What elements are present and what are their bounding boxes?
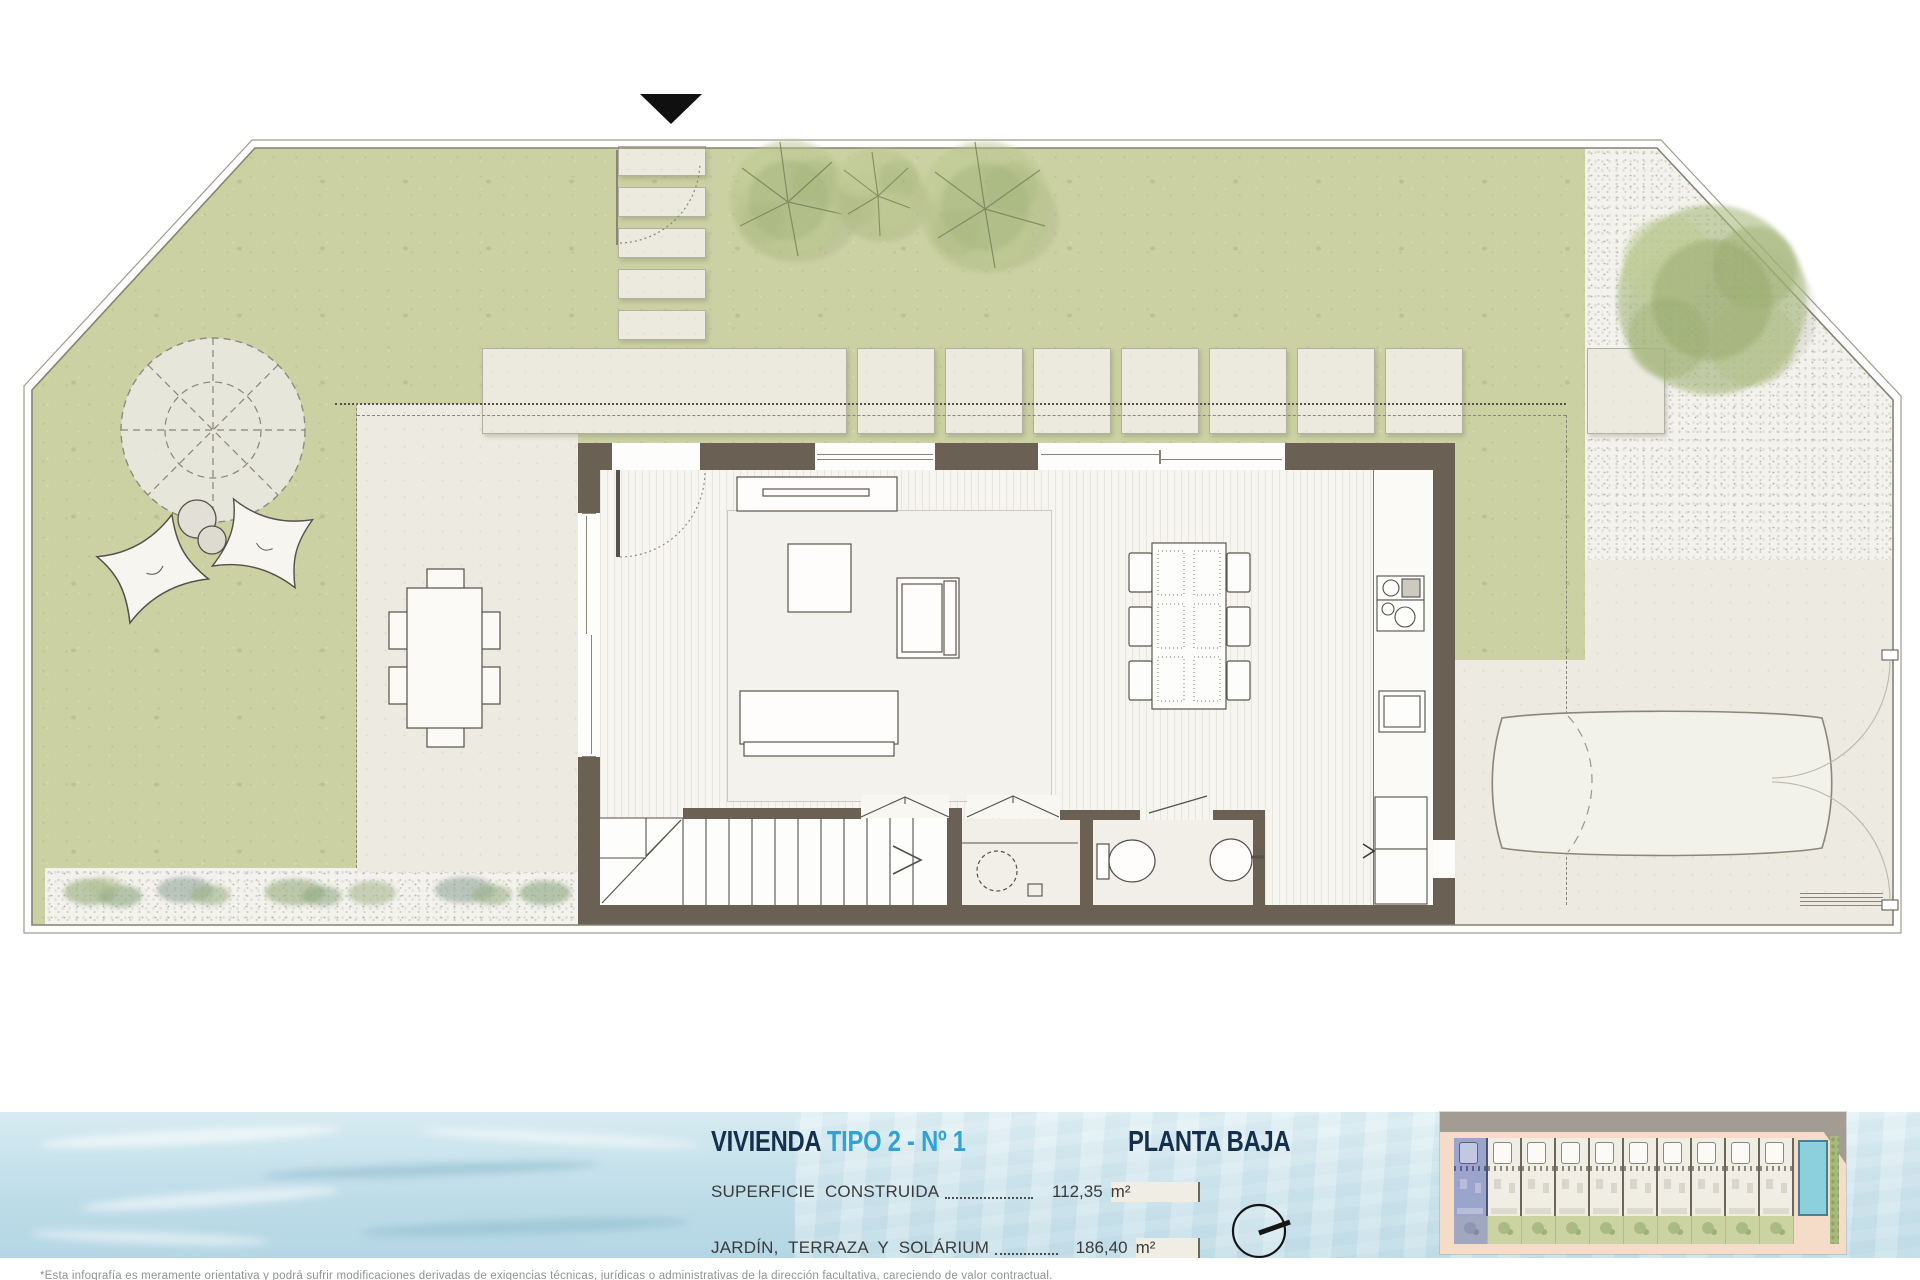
dotted-leader — [995, 1252, 1057, 1255]
closet-bifold-doors — [861, 795, 1059, 818]
dining-set — [1129, 543, 1250, 709]
bathroom-door-leaf — [1149, 796, 1207, 813]
large-tree — [1617, 205, 1817, 395]
kitchen-hob — [1377, 600, 1424, 631]
thumbnail-garden — [1590, 1216, 1624, 1244]
plan-title: VIVIENDA TIPO 2 - Nº 1 — [711, 1126, 966, 1159]
thumbnail-unit-highlighted — [1454, 1138, 1488, 1216]
info-band: VIVIENDA TIPO 2 - Nº 1 PLANTA BAJA SUPER… — [0, 1112, 1920, 1258]
stair-treads — [600, 818, 913, 905]
shrubs — [64, 877, 571, 907]
compass-icon — [1226, 1202, 1294, 1258]
washbasin — [1210, 839, 1264, 881]
thumbnail-garden — [1726, 1216, 1760, 1244]
thumbnail-garden — [1658, 1216, 1692, 1244]
title-project: VIVIENDA — [711, 1126, 820, 1158]
area-label: JARDÍN, TERRAZA Y SOLÁRIUM — [711, 1238, 989, 1258]
fridge — [1375, 797, 1427, 904]
disclaimer-text: *Esta infografía es meramente orientativ… — [40, 1270, 1640, 1280]
thumbnail-unit — [1556, 1138, 1590, 1216]
thumbnail-garden — [1760, 1216, 1794, 1244]
plan-sheet: VIVIENDA TIPO 2 - Nº 1 PLANTA BAJA SUPER… — [0, 0, 1920, 1280]
kitchen-sink — [1377, 576, 1424, 600]
thumbnail-unit — [1522, 1138, 1556, 1216]
area-unit: m² — [1136, 1238, 1200, 1258]
washing-machine — [962, 843, 1078, 896]
thumbnail-pool — [1798, 1140, 1828, 1216]
area-value: 186,40 — [1064, 1238, 1128, 1258]
armchair — [897, 578, 959, 658]
car — [1492, 711, 1832, 855]
thumbnail-units-row — [1454, 1138, 1794, 1216]
area-row-garden: JARDÍN, TERRAZA Y SOLÁRIUM 186,40 m² — [711, 1238, 1200, 1258]
entry-door-leaf — [616, 470, 705, 557]
toilet — [1097, 840, 1155, 882]
thumbnail-garden — [1522, 1216, 1556, 1244]
title-variant: TIPO 2 - Nº 1 — [827, 1126, 966, 1158]
area-value: 112,35 — [1039, 1182, 1103, 1202]
parasol — [121, 338, 305, 522]
thumbnail-garden — [1624, 1216, 1658, 1244]
thumbnail-unit — [1624, 1138, 1658, 1216]
floor-label: PLANTA BAJA — [1128, 1126, 1290, 1159]
thumbnail-road — [1440, 1112, 1846, 1132]
thumbnail-hedge — [1830, 1136, 1839, 1244]
thumbnail-garden — [1692, 1216, 1726, 1244]
thumbnail-garden — [1454, 1216, 1488, 1244]
gate-swing-arc — [620, 163, 700, 243]
coffee-table — [788, 544, 851, 612]
thumbnail-unit — [1760, 1138, 1794, 1216]
entry-chevron-icon — [1363, 844, 1374, 858]
oven — [1379, 691, 1425, 732]
thumbnail-garden — [1488, 1216, 1522, 1244]
tree — [919, 141, 1059, 273]
thumbnail-unit — [1692, 1138, 1726, 1216]
area-unit: m² — [1111, 1182, 1200, 1202]
thumbnail-unit — [1488, 1138, 1522, 1216]
water-photo — [0, 1112, 795, 1258]
site-plan-thumbnail — [1440, 1112, 1846, 1254]
thumbnail-gardens-row — [1454, 1216, 1794, 1244]
dotted-leader — [945, 1196, 1032, 1199]
thumbnail-unit — [1590, 1138, 1624, 1216]
thumbnail-unit — [1726, 1138, 1760, 1216]
side-table — [198, 526, 226, 554]
stair-direction-arrow — [893, 846, 921, 874]
outdoor-dining-set — [389, 569, 500, 747]
tv-sideboard — [737, 477, 897, 511]
floor-plan-canvas — [0, 0, 1920, 1100]
area-label: SUPERFICIE CONSTRUIDA — [711, 1182, 939, 1202]
thumbnail-unit — [1658, 1138, 1692, 1216]
plan-linework — [0, 0, 1920, 1100]
area-row-built: SUPERFICIE CONSTRUIDA 112,35 m² — [711, 1182, 1200, 1202]
sofa — [740, 691, 898, 756]
thumbnail-garden — [1556, 1216, 1590, 1244]
